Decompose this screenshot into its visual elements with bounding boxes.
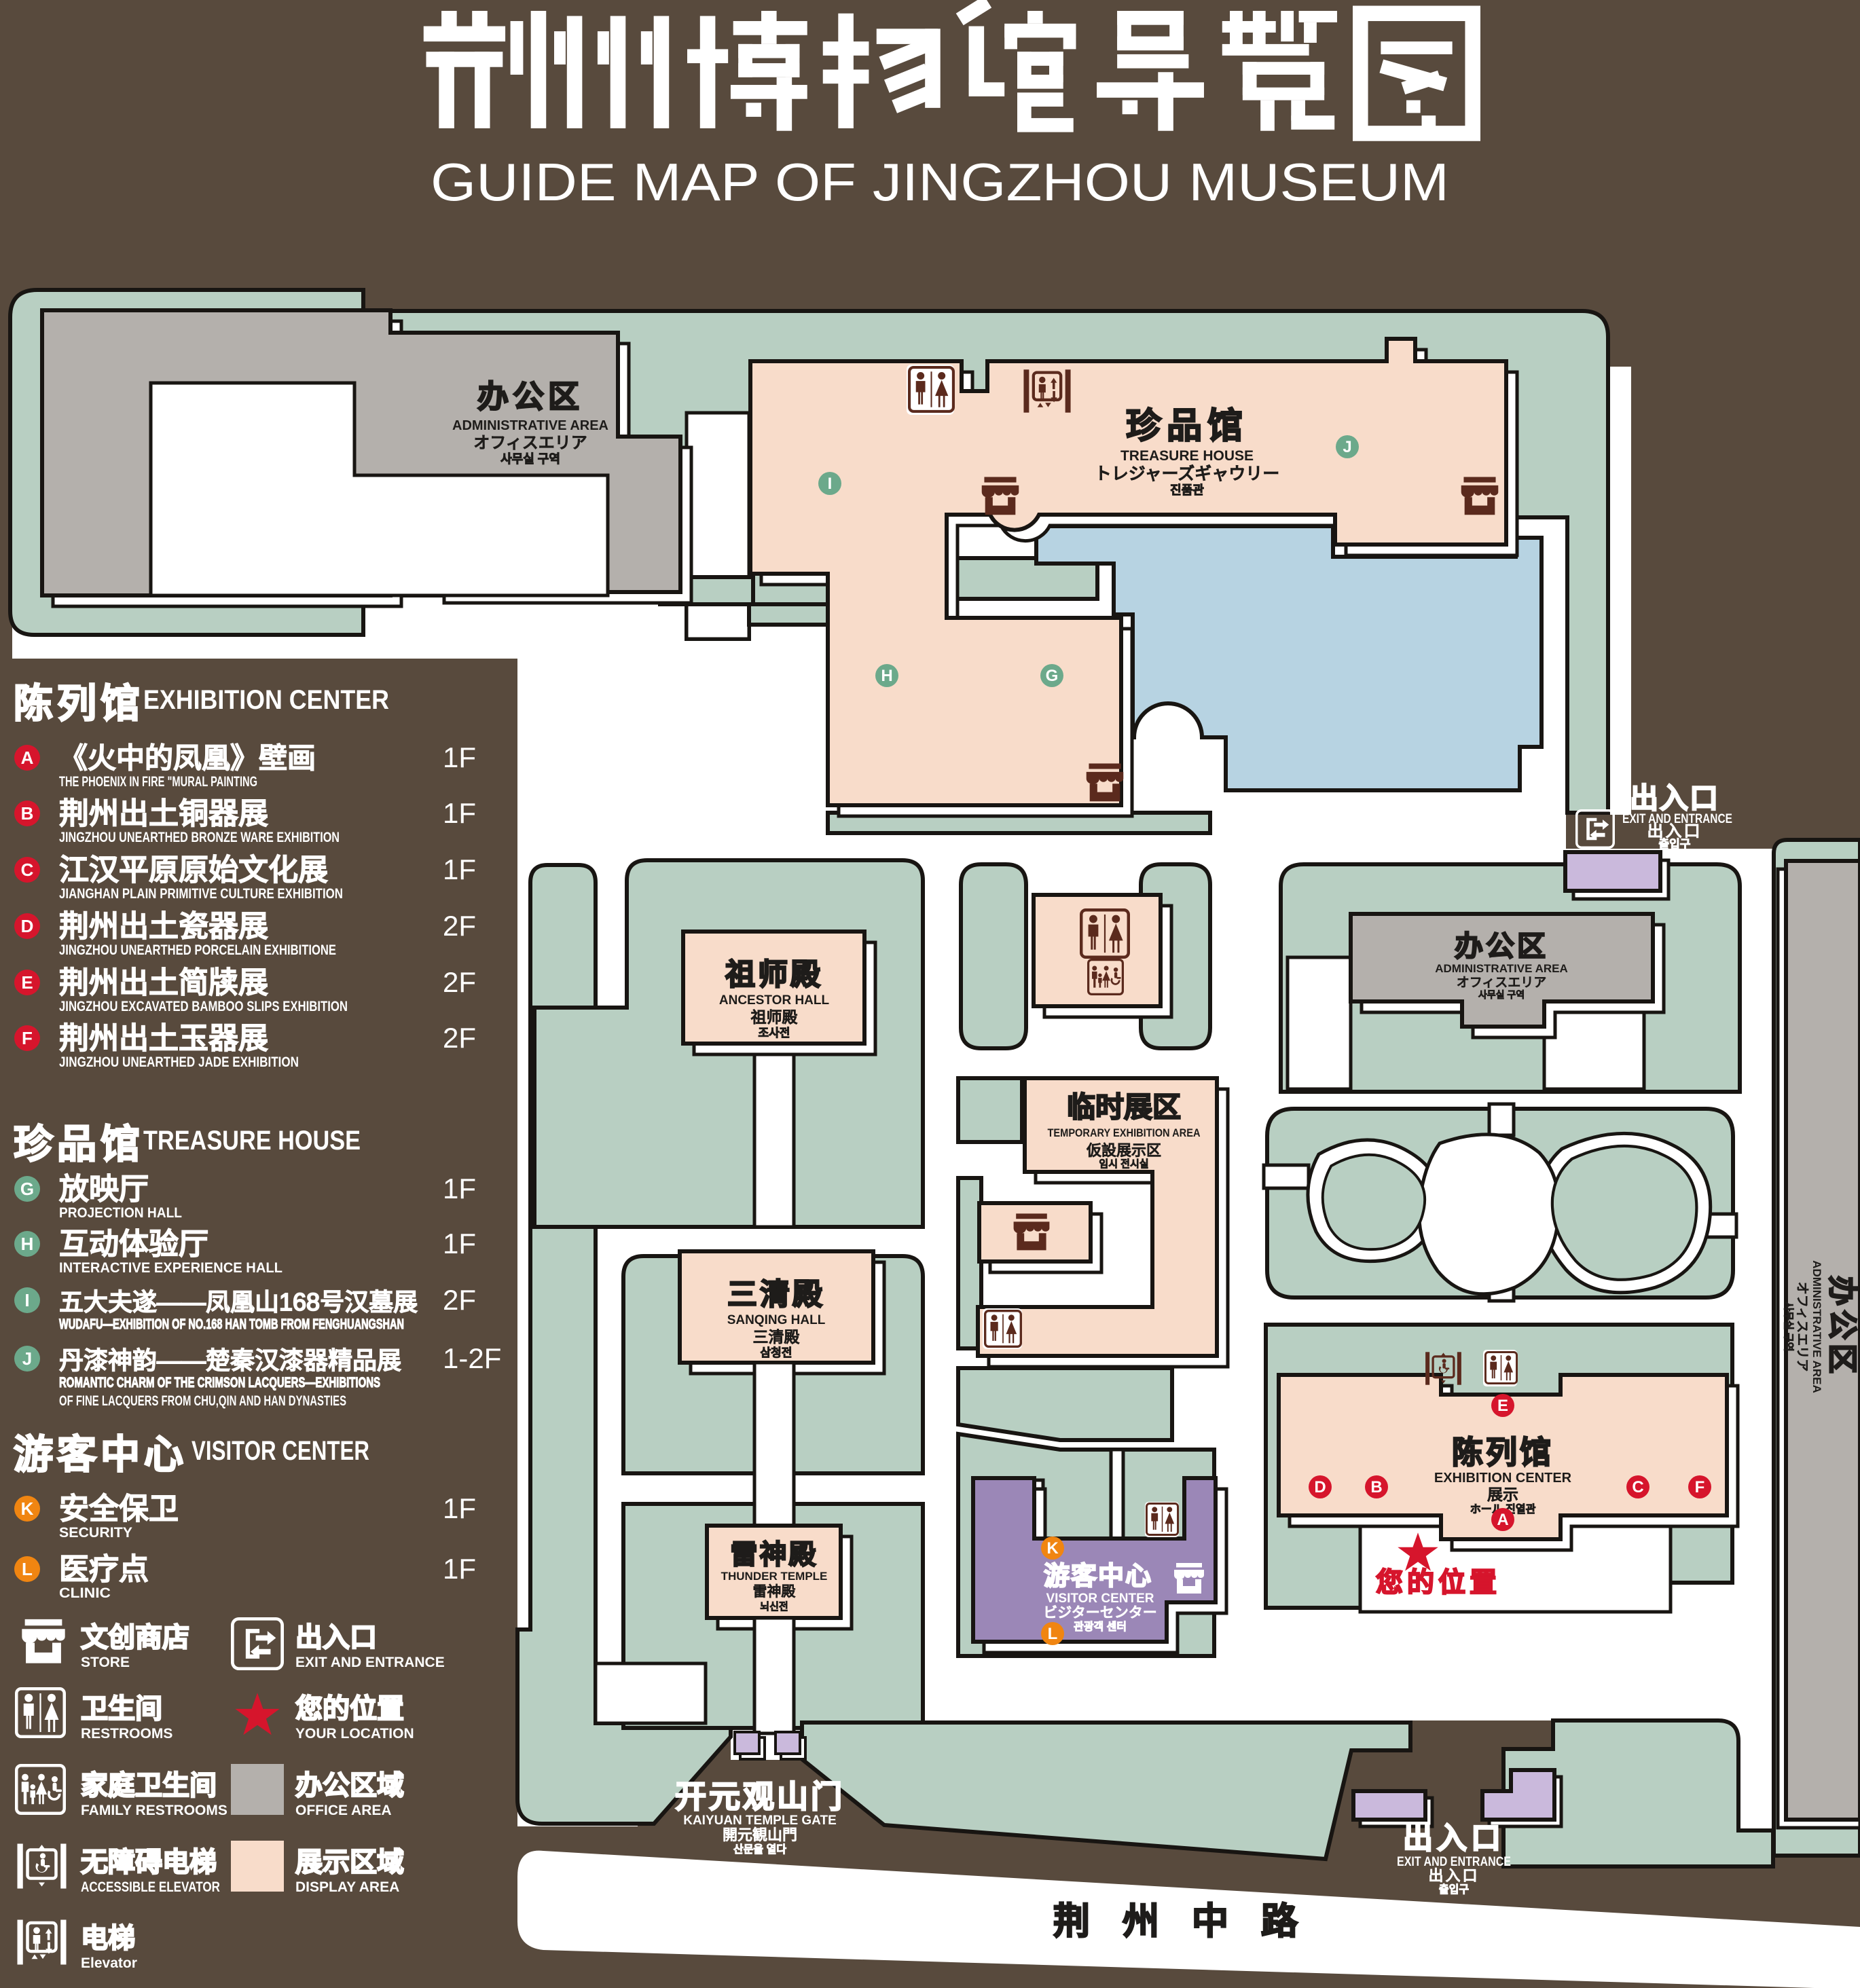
- svg-text:电梯: 电梯: [81, 1923, 135, 1953]
- svg-text:TEMPORARY EXHIBITION AREA: TEMPORARY EXHIBITION AREA: [1048, 1126, 1201, 1139]
- svg-text:J: J: [22, 1348, 32, 1369]
- svg-text:办公区域: 办公区域: [295, 1771, 404, 1801]
- svg-text:開元観山門: 開元観山門: [723, 1826, 797, 1843]
- svg-text:OFFICE AREA: OFFICE AREA: [295, 1803, 392, 1818]
- svg-text:安全保卫: 安全保卫: [59, 1492, 179, 1526]
- svg-text:사무실 구역: 사무실 구역: [1783, 1302, 1794, 1351]
- svg-text:E: E: [21, 972, 33, 993]
- svg-text:互动体验厅: 互动体验厅: [59, 1228, 208, 1261]
- svg-text:JINGZHOU UNEARTHED JADE EXHIBI: JINGZHOU UNEARTHED JADE EXHIBITION: [59, 1054, 299, 1070]
- svg-text:SANQING HALL: SANQING HALL: [727, 1313, 826, 1327]
- svg-text:1-2F: 1-2F: [443, 1342, 501, 1374]
- svg-text:D: D: [1314, 1478, 1326, 1496]
- svg-text:STORE: STORE: [81, 1655, 130, 1670]
- svg-text:陈列馆: 陈列馆: [1452, 1435, 1554, 1470]
- svg-text:展示: 展示: [1487, 1486, 1518, 1503]
- svg-text:JIANGHAN PLAIN PRIMITIVE CULTU: JIANGHAN PLAIN PRIMITIVE CULTURE EXHIBIT…: [59, 886, 343, 902]
- svg-text:Elevator: Elevator: [81, 1955, 137, 1971]
- svg-text:江汉平原原始文化展: 江汉平原原始文化展: [59, 853, 328, 887]
- svg-text:EXHIBITION CENTER: EXHIBITION CENTER: [1434, 1471, 1572, 1486]
- svg-text:진품관: 진품관: [1170, 483, 1204, 497]
- svg-text:INTERACTIVE EXPERIENCE HALL: INTERACTIVE EXPERIENCE HALL: [59, 1260, 282, 1276]
- svg-text:PROJECTION HALL: PROJECTION HALL: [59, 1205, 182, 1221]
- svg-text:C: C: [21, 860, 34, 880]
- svg-text:뇌신전: 뇌신전: [760, 1601, 788, 1613]
- svg-text:출입구: 출입구: [1439, 1883, 1469, 1896]
- svg-text:オフィスエリア: オフィスエリア: [1795, 1282, 1809, 1372]
- svg-text:E: E: [1497, 1397, 1508, 1415]
- svg-text:출입구: 출입구: [1659, 838, 1691, 851]
- svg-text:出入口: 出入口: [1428, 1867, 1479, 1884]
- svg-text:조사전: 조사전: [759, 1027, 790, 1039]
- svg-text:VISITOR CENTER: VISITOR CENTER: [192, 1436, 369, 1466]
- svg-text:CLINIC: CLINIC: [59, 1585, 111, 1601]
- svg-text:游客中心: 游客中心: [14, 1433, 187, 1477]
- svg-text:JINGZHOU UNEARTHED PORCELAIN E: JINGZHOU UNEARTHED PORCELAIN EXHIBITIONE: [59, 942, 336, 958]
- svg-text:1F: 1F: [443, 1492, 476, 1524]
- svg-text:K: K: [1046, 1539, 1059, 1558]
- svg-text:JINGZHOU EXCAVATED BAMBOO SLIP: JINGZHOU EXCAVATED BAMBOO SLIPS EXHIBITI…: [59, 999, 348, 1014]
- svg-text:1F: 1F: [443, 1173, 476, 1204]
- svg-text:《火中的凤凰》壁画: 《火中的凤凰》壁画: [59, 742, 316, 774]
- svg-text:사무실 구역: 사무실 구역: [1478, 989, 1525, 1000]
- svg-text:游客中心: 游客中心: [1044, 1562, 1152, 1591]
- svg-text:丹漆神韵——楚秦汉漆器精品展: 丹漆神韵——楚秦汉漆器精品展: [59, 1346, 401, 1374]
- svg-text:荆州出土铜器展: 荆州出土铜器展: [59, 797, 268, 830]
- svg-text:F: F: [1695, 1478, 1705, 1496]
- svg-text:RESTROOMS: RESTROOMS: [81, 1726, 172, 1742]
- svg-text:出入口: 出入口: [1403, 1822, 1505, 1855]
- svg-text:荆州出土简牍展: 荆州出土简牍展: [59, 966, 268, 999]
- svg-text:出入口: 出入口: [295, 1623, 377, 1653]
- svg-text:2F: 2F: [443, 1022, 476, 1054]
- svg-text:K: K: [21, 1498, 34, 1519]
- svg-text:H: H: [21, 1234, 34, 1254]
- svg-text:1F: 1F: [443, 797, 476, 829]
- svg-text:开元观山门: 开元观山门: [675, 1779, 845, 1814]
- svg-text:A: A: [1497, 1511, 1508, 1529]
- svg-text:EXHIBITION CENTER: EXHIBITION CENTER: [143, 685, 389, 715]
- svg-text:1F: 1F: [443, 1228, 476, 1259]
- svg-text:삼청전: 삼청전: [761, 1346, 792, 1359]
- svg-text:C: C: [1632, 1478, 1643, 1496]
- svg-text:オフィスエリア: オフィスエリア: [1457, 976, 1547, 990]
- svg-text:EXIT AND ENTRANCE: EXIT AND ENTRANCE: [295, 1655, 445, 1670]
- svg-text:B: B: [1370, 1478, 1382, 1496]
- svg-text:放映厅: 放映厅: [59, 1173, 149, 1206]
- svg-text:办公区: 办公区: [1455, 930, 1548, 962]
- svg-text:산문을 열다: 산문을 열다: [733, 1843, 786, 1856]
- svg-text:B: B: [21, 803, 34, 824]
- svg-text:三清殿: 三清殿: [753, 1328, 800, 1346]
- svg-text:仮設展示区: 仮設展示区: [1087, 1142, 1161, 1159]
- svg-text:TREASURE HOUSE: TREASURE HOUSE: [1120, 448, 1254, 464]
- svg-text:展示区域: 展示区域: [295, 1847, 404, 1877]
- svg-text:2F: 2F: [443, 910, 476, 942]
- svg-text:五大夫遂——凤凰山168号汉墓展: 五大夫遂——凤凰山168号汉墓展: [59, 1288, 418, 1316]
- svg-text:荆州中路: 荆州中路: [1053, 1901, 1330, 1942]
- svg-text:임시 전시실: 임시 전시실: [1099, 1158, 1148, 1170]
- svg-text:オフィスエリア: オフィスエリア: [473, 434, 587, 452]
- svg-text:1F: 1F: [443, 741, 476, 773]
- svg-text:VISITOR CENTER: VISITOR CENTER: [1046, 1591, 1154, 1606]
- svg-text:THE PHOENIX IN FIRE "MURAL PAI: THE PHOENIX IN FIRE "MURAL PAINTING: [59, 774, 257, 790]
- svg-text:祖师殿: 祖师殿: [725, 958, 823, 991]
- svg-text:사무실 구역: 사무실 구역: [500, 452, 560, 466]
- svg-text:THUNDER TEMPLE: THUNDER TEMPLE: [721, 1570, 828, 1583]
- svg-text:祖师殿: 祖师殿: [751, 1008, 798, 1026]
- svg-text:医疗点: 医疗点: [59, 1553, 149, 1586]
- svg-text:F: F: [22, 1028, 33, 1048]
- svg-text:家庭卫生间: 家庭卫生间: [81, 1771, 217, 1801]
- svg-text:DISPLAY AREA: DISPLAY AREA: [295, 1879, 399, 1895]
- svg-text:1F: 1F: [443, 1553, 476, 1585]
- svg-text:A: A: [21, 748, 34, 768]
- svg-text:您的位置: 您的位置: [295, 1694, 404, 1724]
- svg-text:GUIDE MAP OF JINGZHOU MUSEUM: GUIDE MAP OF JINGZHOU MUSEUM: [431, 152, 1449, 212]
- svg-text:ACCESSIBLE ELEVATOR: ACCESSIBLE ELEVATOR: [81, 1879, 220, 1895]
- svg-text:G: G: [20, 1179, 34, 1199]
- svg-text:荆州出土玉器展: 荆州出土玉器展: [59, 1022, 268, 1055]
- svg-text:卫生间: 卫生间: [81, 1694, 162, 1724]
- svg-text:2F: 2F: [443, 966, 476, 998]
- svg-text:办公区: 办公区: [1825, 1276, 1859, 1378]
- svg-text:ROMANTIC CHARM OF THE CRIMSON: ROMANTIC CHARM OF THE CRIMSON LACQUERS—E…: [59, 1375, 380, 1391]
- svg-text:I: I: [24, 1290, 29, 1310]
- svg-text:TREASURE HOUSE: TREASURE HOUSE: [143, 1126, 361, 1156]
- svg-text:ビジターセンター: ビジターセンター: [1043, 1605, 1157, 1621]
- svg-text:JINGZHOU UNEARTHED BRONZE WARE: JINGZHOU UNEARTHED BRONZE WARE EXHIBITIO…: [59, 830, 340, 845]
- svg-text:2F: 2F: [443, 1284, 476, 1316]
- svg-text:荆州出土瓷器展: 荆州出土瓷器展: [59, 910, 268, 943]
- svg-text:ADMINISTRATIVE AREA: ADMINISTRATIVE AREA: [1435, 962, 1568, 975]
- svg-text:临时展区: 临时展区: [1067, 1091, 1181, 1123]
- svg-text:陈列馆: 陈列馆: [14, 682, 144, 726]
- svg-text:SECURITY: SECURITY: [59, 1525, 132, 1541]
- svg-text:H: H: [881, 667, 892, 685]
- svg-text:ADMINISTRATIVE AREA: ADMINISTRATIVE AREA: [1810, 1260, 1823, 1393]
- svg-text:办公区: 办公区: [477, 379, 583, 414]
- svg-text:ADMINISTRATIVE AREA: ADMINISTRATIVE AREA: [452, 418, 608, 433]
- svg-text:三清殿: 三清殿: [727, 1278, 825, 1311]
- svg-text:L: L: [1048, 1625, 1058, 1643]
- svg-text:YOUR LOCATION: YOUR LOCATION: [295, 1726, 414, 1742]
- svg-text:珍品馆: 珍品馆: [1126, 407, 1248, 446]
- svg-text:OF FINE LACQUERS FROM CHU,QIN: OF FINE LACQUERS FROM CHU,QIN AND HAN DY…: [59, 1393, 346, 1409]
- svg-text:无障碍电梯: 无障碍电梯: [81, 1847, 217, 1877]
- svg-text:FAMILY RESTROOMS: FAMILY RESTROOMS: [81, 1803, 227, 1818]
- svg-text:WUDAFU—EXHIBITION OF NO.168 HA: WUDAFU—EXHIBITION OF NO.168 HAN TOMB FRO…: [59, 1317, 404, 1332]
- svg-text:관광객 센터: 관광객 센터: [1074, 1620, 1127, 1633]
- svg-text:珍品馆: 珍品馆: [14, 1122, 144, 1166]
- svg-text:KAIYUAN TEMPLE GATE: KAIYUAN TEMPLE GATE: [683, 1814, 837, 1828]
- svg-text:L: L: [22, 1559, 33, 1579]
- svg-text:文创商店: 文创商店: [81, 1623, 189, 1653]
- svg-text:ANCESTOR HALL: ANCESTOR HALL: [719, 993, 830, 1008]
- svg-text:トレジャーズギャウリー: トレジャーズギャウリー: [1095, 464, 1280, 483]
- svg-text:雷神殿: 雷神殿: [753, 1584, 796, 1600]
- svg-text:出入口: 出入口: [1630, 782, 1719, 814]
- svg-text:G: G: [1046, 667, 1059, 685]
- svg-text:1F: 1F: [443, 853, 476, 885]
- svg-text:D: D: [21, 916, 34, 936]
- svg-text:J: J: [1343, 438, 1351, 456]
- svg-text:雷神殿: 雷神殿: [731, 1540, 818, 1570]
- svg-text:I: I: [828, 475, 833, 493]
- svg-text:您的位置: 您的位置: [1376, 1568, 1501, 1598]
